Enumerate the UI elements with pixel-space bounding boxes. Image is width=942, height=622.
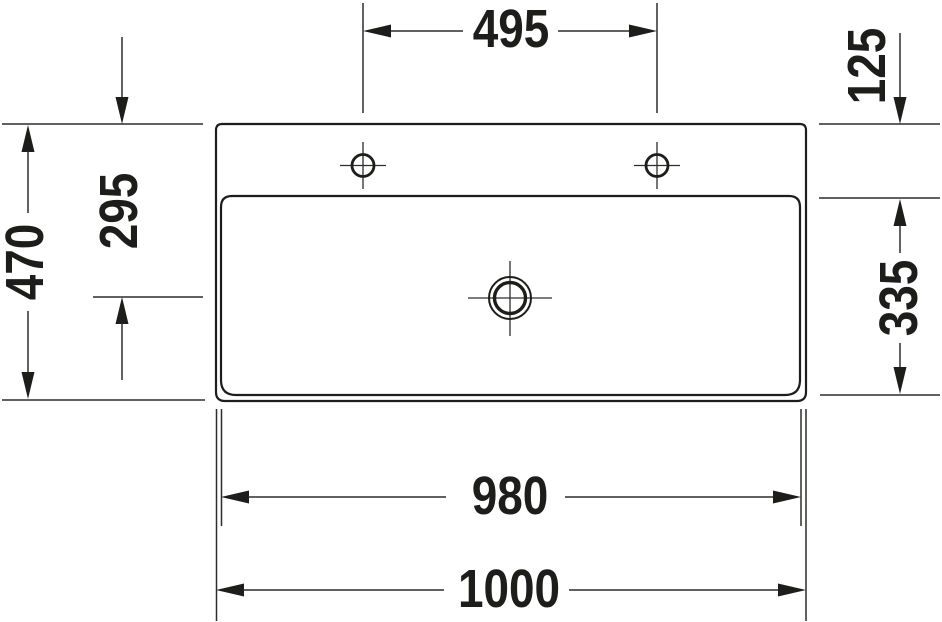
arrowhead-right: [773, 491, 801, 504]
dim-label-overall-depth: 470: [0, 224, 52, 301]
dim-label-drain-offset: 295: [92, 173, 146, 250]
faucet-hole-left: [340, 142, 386, 189]
technical-drawing-canvas: 495 125 335 470 295 980 1000: [0, 0, 942, 622]
arrowhead-down: [894, 367, 907, 394]
outer-rim-outline: [216, 124, 806, 401]
dim-label-rim-to-bowl-top: 125: [840, 28, 894, 105]
dim-label-bowl-width: 980: [472, 469, 549, 523]
arrowhead-up: [116, 297, 129, 324]
drain-hole: [468, 261, 552, 336]
washbasin-dimension-drawing: [0, 0, 942, 622]
arrowhead-down: [116, 97, 129, 124]
arrowhead-left: [363, 25, 391, 38]
dim-label-bowl-depth: 335: [872, 260, 926, 337]
dim-label-overall-width: 1000: [458, 562, 560, 616]
arrowhead-right: [778, 584, 806, 597]
arrowhead-down: [22, 372, 35, 399]
faucet-hole-right: [634, 142, 680, 189]
arrowhead-up: [22, 125, 35, 152]
arrowhead-left: [216, 584, 244, 597]
dim-label-faucet-spacing: 495: [473, 2, 550, 56]
arrowhead-right: [629, 25, 657, 38]
arrowhead-left: [221, 491, 249, 504]
arrowhead-up: [894, 199, 907, 226]
washbasin-outer-rim: [216, 124, 806, 401]
